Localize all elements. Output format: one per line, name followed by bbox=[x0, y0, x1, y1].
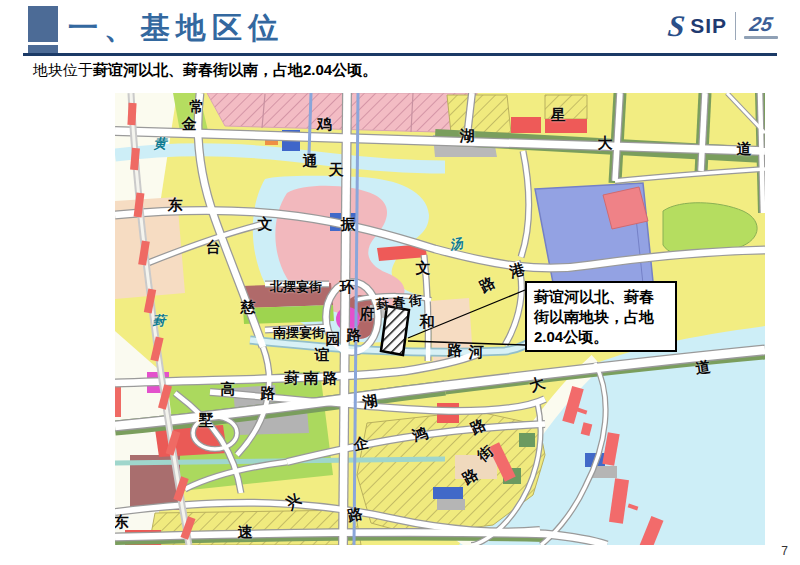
sip-brand-text: SIP bbox=[690, 14, 727, 38]
sip-logo: S SIP 25 bbox=[668, 6, 778, 46]
subtitle-prefix: 地块位于 bbox=[33, 61, 93, 78]
site-parcel bbox=[381, 306, 409, 355]
anniversary-number: 25 bbox=[748, 14, 774, 34]
page-number: 7 bbox=[781, 544, 788, 558]
site-callout: 葑谊河以北、葑春街以南地块，占地2.04公顷。 bbox=[525, 281, 677, 352]
subtitle: 地块位于葑谊河以北、葑春街以南，占地2.04公顷。 bbox=[33, 61, 377, 80]
anniversary-caption-line bbox=[744, 36, 778, 39]
header-divider bbox=[23, 53, 777, 56]
title-accent-square bbox=[28, 6, 58, 42]
logo-divider bbox=[735, 12, 736, 40]
site-callout-text: 葑谊河以北、葑春街以南地块，占地2.04公顷。 bbox=[534, 288, 654, 345]
page-title: 一、基地区位 bbox=[68, 8, 284, 49]
planning-map: 常金黄鸡湖星大道通天东文台振汤港路文和北摆宴街环葑 春 街府南摆宴街园路谊路河葑… bbox=[115, 93, 765, 545]
sip-s-icon: S bbox=[667, 11, 687, 41]
slide: 一、基地区位 S SIP 25 地块位于葑谊河以北、葑春街以南，占地2.04公顷… bbox=[0, 0, 800, 565]
anniversary-logo: 25 bbox=[744, 14, 778, 39]
subtitle-emphasis: 葑谊河以北、葑春街以南，占地2.04公顷。 bbox=[93, 61, 377, 78]
